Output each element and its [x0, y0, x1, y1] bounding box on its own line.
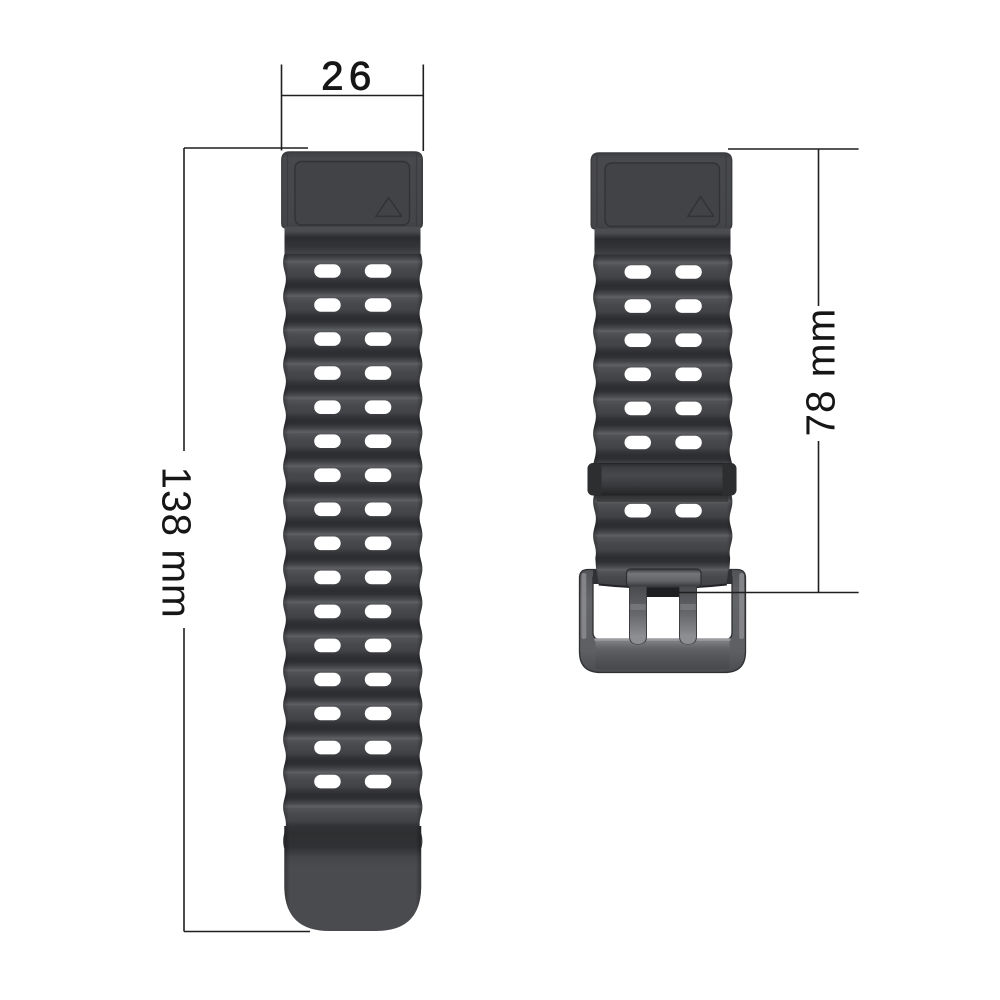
svg-text:26: 26 — [321, 55, 377, 99]
svg-text:78 mm: 78 mm — [798, 308, 844, 437]
svg-text:138 mm: 138 mm — [154, 467, 200, 619]
